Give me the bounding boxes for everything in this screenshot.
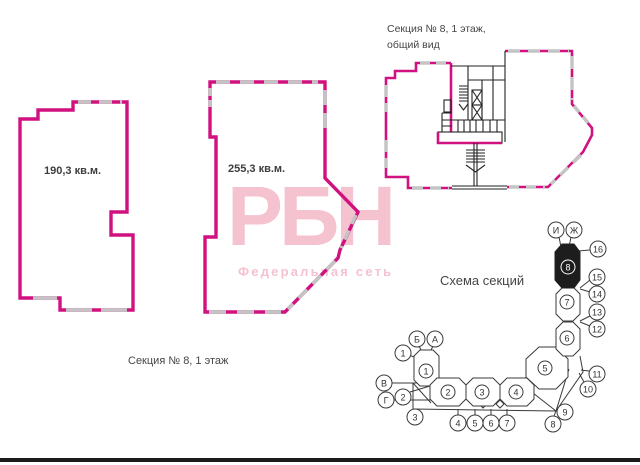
scheme-sections xyxy=(414,244,580,406)
section-number: 6 xyxy=(564,334,569,344)
axis-label: А xyxy=(432,335,438,345)
plan-area-label-255: 255,3 кв.м. xyxy=(228,163,285,175)
overview-title-line1: Секция № 8, 1 этаж, xyxy=(387,23,486,35)
scheme-title: Схема секций xyxy=(440,273,524,288)
floorplan-drawing: 1 2 3 4 5 6 7 8 И Ж 16 15 14 13 12 11 10… xyxy=(0,0,640,465)
axis-label: 7 xyxy=(504,419,509,429)
axis-label: 15 xyxy=(592,273,602,283)
axis-label: 9 xyxy=(562,408,567,418)
floorplan-page: РБН Федеральная сеть xyxy=(0,0,640,465)
section-overview-plan xyxy=(386,51,592,189)
axis-label: Ж xyxy=(570,226,579,236)
stair-core xyxy=(438,51,507,189)
floor-plan-190 xyxy=(20,102,133,310)
axis-label: И xyxy=(553,226,559,236)
axis-label: 5 xyxy=(472,419,477,429)
axis-label: 12 xyxy=(592,325,602,335)
plan-area-label-190: 190,3 кв.м. xyxy=(44,165,101,177)
overview-title-line2: общий вид xyxy=(387,39,440,51)
axis-label: 16 xyxy=(593,245,603,255)
overview-title: Секция № 8, 1 этаж,общий вид xyxy=(387,21,486,54)
section-number: 4 xyxy=(513,388,518,398)
axis-label: Б xyxy=(414,335,420,345)
section-scheme: 1 2 3 4 5 6 7 8 И Ж 16 15 14 13 12 11 10… xyxy=(376,222,606,432)
bottom-border-bar xyxy=(0,458,640,462)
section-number: 5 xyxy=(542,364,547,374)
section-number: 3 xyxy=(479,388,484,398)
axis-label: 10 xyxy=(583,385,593,395)
axis-label: В xyxy=(381,379,387,389)
axis-label: 2 xyxy=(400,393,405,403)
floor-plan-255 xyxy=(205,82,358,312)
axis-label: 3 xyxy=(412,413,417,423)
axis-label: 1 xyxy=(400,349,405,359)
section-number-highlighted: 8 xyxy=(565,263,570,273)
axis-label: 14 xyxy=(592,290,602,300)
axis-label: 11 xyxy=(592,370,601,380)
section-number: 1 xyxy=(423,367,428,377)
section-number: 2 xyxy=(445,388,450,398)
section-number: 7 xyxy=(564,298,569,308)
axis-label: Г xyxy=(384,396,389,406)
axis-label: 6 xyxy=(488,419,493,429)
axis-label: 8 xyxy=(550,420,555,430)
axis-label: 13 xyxy=(592,308,602,318)
footer-section-label: Секция № 8, 1 этаж xyxy=(128,355,228,367)
axis-label: 4 xyxy=(455,419,460,429)
